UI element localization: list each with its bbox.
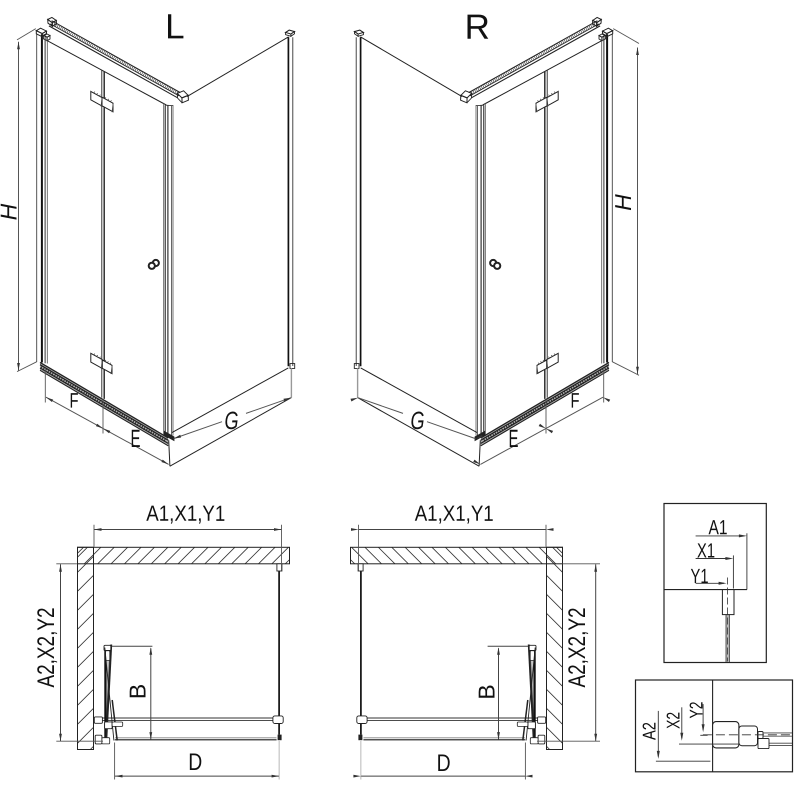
svg-text:D: D — [437, 750, 451, 777]
svg-text:G: G — [224, 407, 238, 435]
svg-text:H: H — [0, 203, 21, 220]
svg-text:E: E — [130, 425, 140, 453]
svg-text:G: G — [410, 407, 424, 435]
svg-text:A2,X2,Y2: A2,X2,Y2 — [564, 608, 591, 688]
svg-text:B: B — [473, 684, 499, 699]
svg-text:A2: A2 — [639, 722, 660, 740]
svg-text:L: L — [165, 7, 184, 46]
svg-text:F: F — [570, 390, 579, 413]
svg-text:B: B — [124, 684, 150, 699]
svg-text:E: E — [508, 425, 518, 453]
svg-text:R: R — [465, 8, 490, 47]
svg-text:A2,X2,Y2: A2,X2,Y2 — [33, 608, 60, 688]
svg-text:F: F — [69, 390, 78, 413]
svg-text:Y1: Y1 — [690, 565, 708, 588]
svg-text:A1,X1,Y1: A1,X1,Y1 — [415, 501, 494, 526]
svg-text:X1: X1 — [697, 539, 715, 562]
svg-text:A1,X1,Y1: A1,X1,Y1 — [146, 501, 225, 526]
svg-text:A1: A1 — [708, 516, 727, 539]
svg-text:X2: X2 — [662, 712, 683, 729]
svg-text:Y2: Y2 — [685, 702, 706, 719]
svg-text:H: H — [610, 194, 636, 211]
svg-text:D: D — [188, 749, 202, 776]
